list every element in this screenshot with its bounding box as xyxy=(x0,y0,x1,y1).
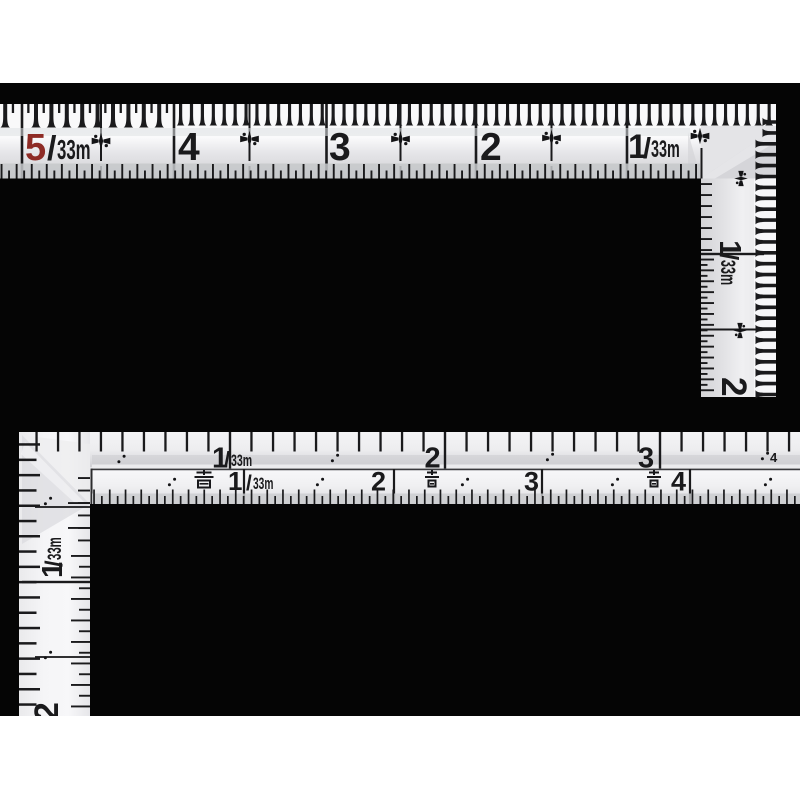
svg-text:33m: 33m xyxy=(45,537,66,560)
svg-text:/: / xyxy=(643,133,651,165)
svg-text:/: / xyxy=(47,130,57,168)
svg-text:4: 4 xyxy=(178,126,200,169)
svg-text:/: / xyxy=(246,472,252,495)
svg-text:3: 3 xyxy=(638,443,654,475)
svg-text:3: 3 xyxy=(524,467,539,497)
svg-text:2: 2 xyxy=(425,443,441,475)
svg-text:1: 1 xyxy=(228,466,242,496)
svg-text:33m: 33m xyxy=(651,136,680,163)
svg-text:/: / xyxy=(714,253,744,260)
svg-text:2: 2 xyxy=(480,126,502,169)
svg-text:4: 4 xyxy=(770,450,778,465)
svg-text:33m: 33m xyxy=(716,260,740,285)
svg-text:33m: 33m xyxy=(57,134,91,166)
svg-text:33m: 33m xyxy=(253,473,273,492)
svg-text:2: 2 xyxy=(714,377,753,396)
svg-text:3: 3 xyxy=(329,126,351,169)
svg-text:4: 4 xyxy=(671,467,686,497)
svg-text:/: / xyxy=(41,560,68,567)
svg-text:2: 2 xyxy=(371,467,386,497)
svg-text:5: 5 xyxy=(25,127,46,169)
